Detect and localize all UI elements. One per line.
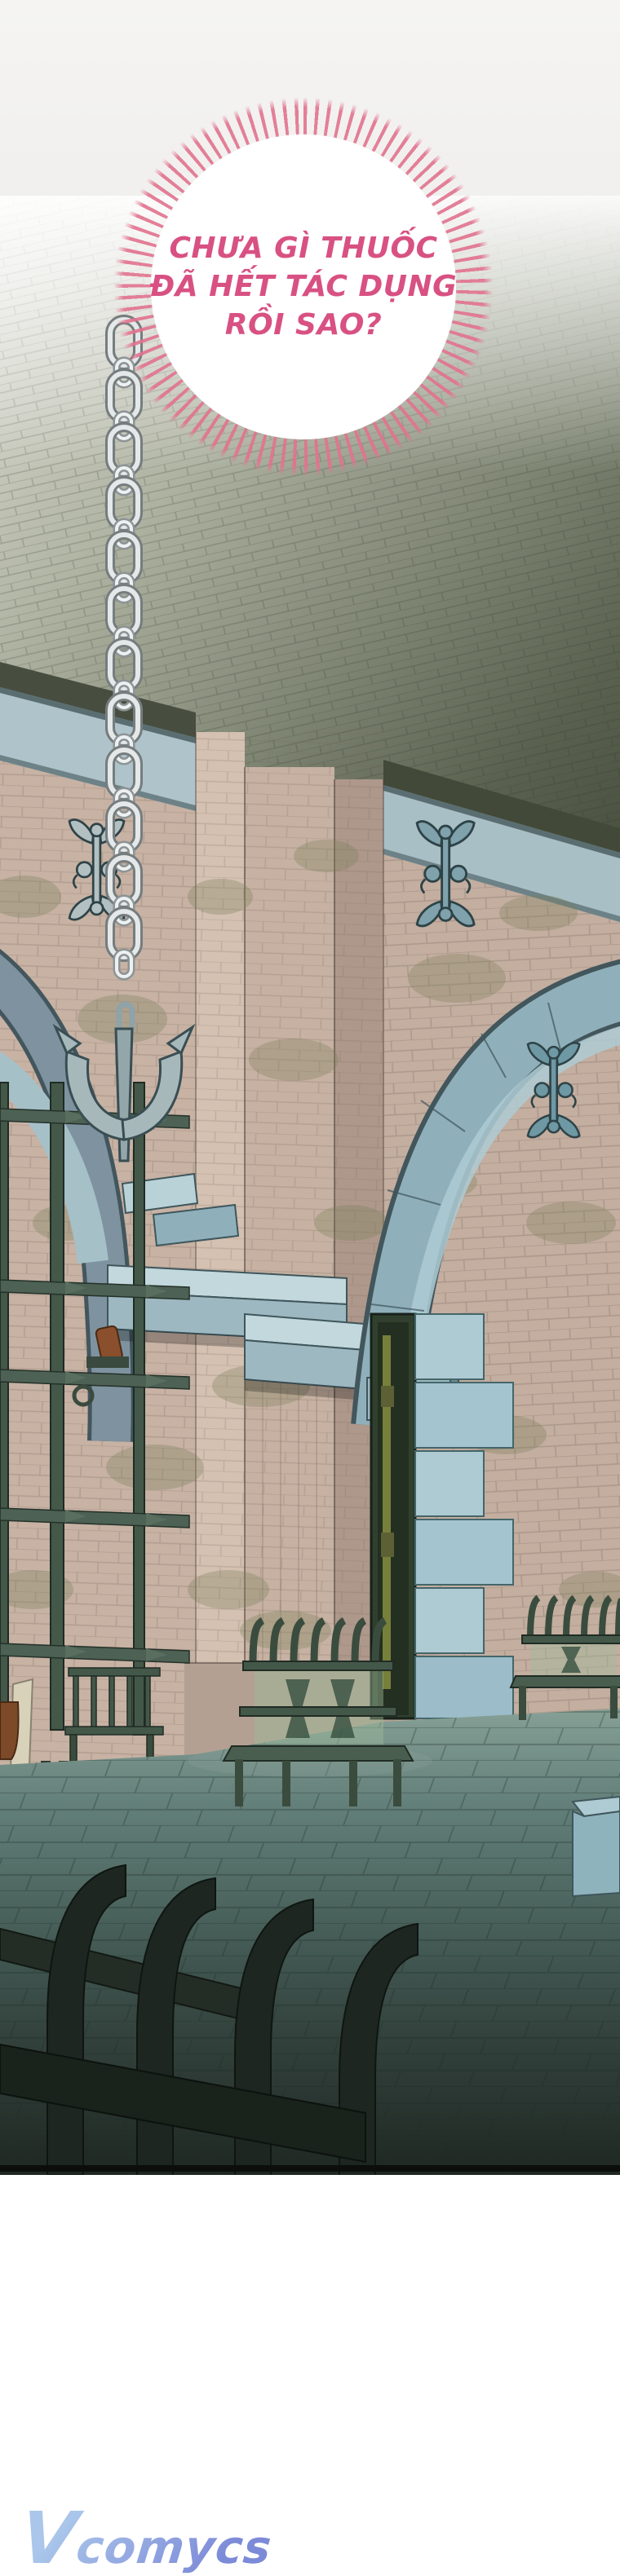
stone-block	[573, 1797, 620, 1896]
arch-emblem	[528, 1043, 579, 1137]
clay-pot	[0, 1702, 19, 1759]
comic-page: CHƯA GÌ THUỐC ĐÃ HẾT TÁC DỤNG RỒI SAO? V…	[0, 0, 620, 2576]
wall-emblem-right	[417, 822, 474, 926]
panel-bottom-edge	[0, 2165, 620, 2172]
watermark-logo: Vcomycs	[17, 2496, 277, 2576]
scene-art	[0, 0, 620, 2175]
dungeon-scene: CHƯA GÌ THUỐC ĐÃ HẾT TÁC DỤNG RỒI SAO?	[0, 0, 620, 2175]
